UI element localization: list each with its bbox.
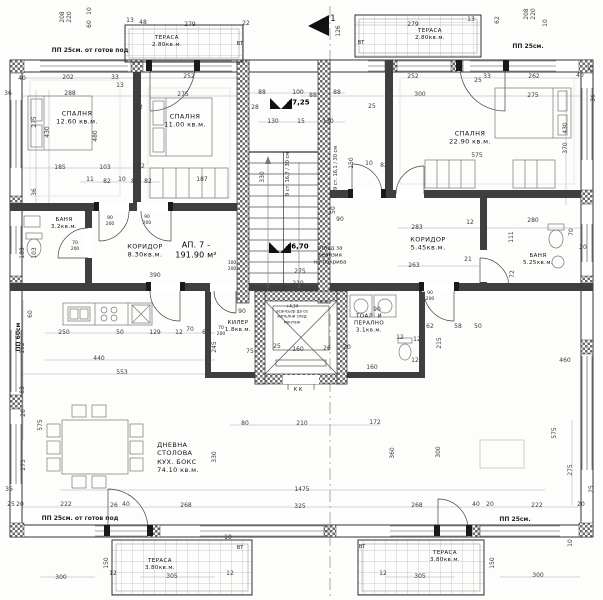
- floor-plan: СПАЛНЯ 12.60 кв.м.СПАЛНЯ 11.00 кв.м.СПАЛ…: [0, 0, 603, 600]
- interior-walls: [10, 60, 593, 378]
- bathroom-fixtures: [548, 224, 564, 268]
- terrace-bottom-right: [358, 540, 484, 595]
- elevator-shaft: [255, 291, 347, 390]
- terraces: [112, 15, 484, 595]
- level-mark-icons: [269, 98, 292, 253]
- dining-set: [47, 405, 143, 488]
- wardrobe: [150, 168, 228, 198]
- terrace-top-left: [125, 25, 243, 62]
- bed: [28, 96, 92, 150]
- floor-plan-drawing: [0, 0, 603, 600]
- staircase: [249, 152, 318, 295]
- stair-direction-arrow-icon: [265, 156, 271, 164]
- kitchen-counter: [63, 303, 152, 325]
- terrace-bottom-left: [112, 540, 252, 595]
- side-table: [480, 440, 524, 468]
- bathroom-fixtures: [24, 216, 42, 257]
- terrace-top-right: [355, 15, 481, 57]
- laundry-fixtures: [350, 295, 412, 360]
- bed: [150, 98, 212, 156]
- bed: [495, 88, 571, 138]
- section-arrow-icon: [308, 15, 329, 36]
